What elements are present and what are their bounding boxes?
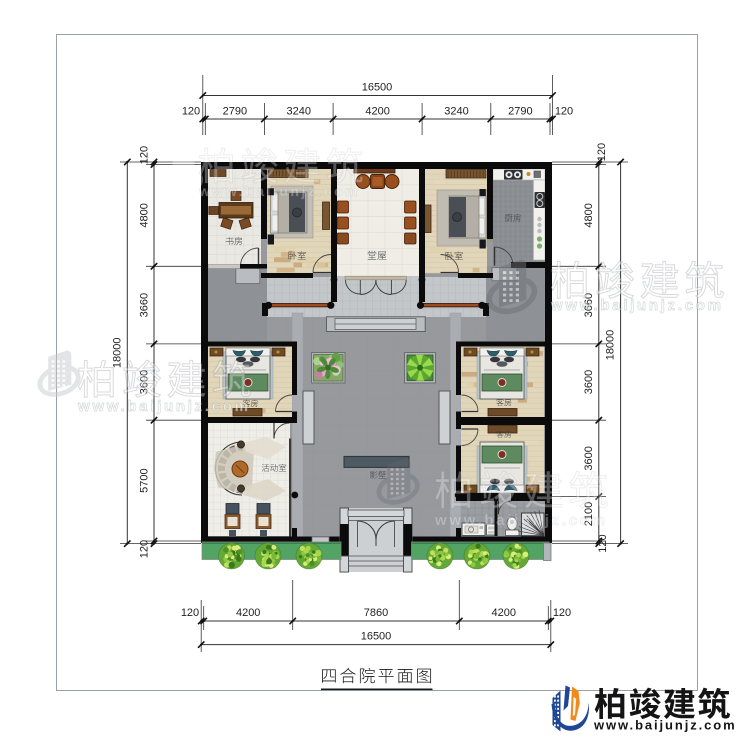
svg-text:120: 120	[555, 106, 573, 118]
svg-text:4200: 4200	[365, 106, 389, 118]
svg-text:3600: 3600	[583, 446, 595, 470]
svg-text:3240: 3240	[287, 106, 311, 118]
svg-text:7860: 7860	[364, 607, 388, 619]
svg-text:5700: 5700	[139, 468, 151, 492]
svg-text:4200: 4200	[236, 607, 260, 619]
svg-text:4800: 4800	[139, 203, 151, 227]
svg-text:120: 120	[139, 540, 151, 558]
svg-text:www.baijunjz.com: www.baijunjz.com	[198, 183, 360, 199]
svg-text:4800: 4800	[583, 203, 595, 227]
svg-text:18000: 18000	[605, 330, 617, 361]
svg-text:120: 120	[139, 146, 151, 164]
svg-text:16500: 16500	[362, 82, 393, 94]
svg-text:3240: 3240	[444, 106, 468, 118]
svg-text:120: 120	[597, 534, 609, 552]
svg-text:www.baijunjz.com: www.baijunjz.com	[550, 297, 724, 314]
svg-text:2790: 2790	[508, 106, 532, 118]
svg-text:www.baijunjz.com: www.baijunjz.com	[434, 512, 608, 529]
svg-text:2790: 2790	[223, 106, 247, 118]
svg-text:3600: 3600	[583, 370, 595, 394]
svg-text:120: 120	[182, 106, 200, 118]
svg-text:16500: 16500	[361, 631, 392, 643]
svg-text:www.baijunjz.com: www.baijunjz.com	[77, 398, 251, 415]
svg-text:3660: 3660	[139, 293, 151, 317]
svg-text:www.baijunjz.com: www.baijunjz.com	[593, 718, 737, 733]
svg-text:120: 120	[596, 143, 608, 161]
svg-text:4200: 4200	[492, 607, 516, 619]
svg-text:120: 120	[181, 607, 199, 619]
svg-text:120: 120	[553, 607, 571, 619]
svg-text:18000: 18000	[112, 338, 124, 369]
